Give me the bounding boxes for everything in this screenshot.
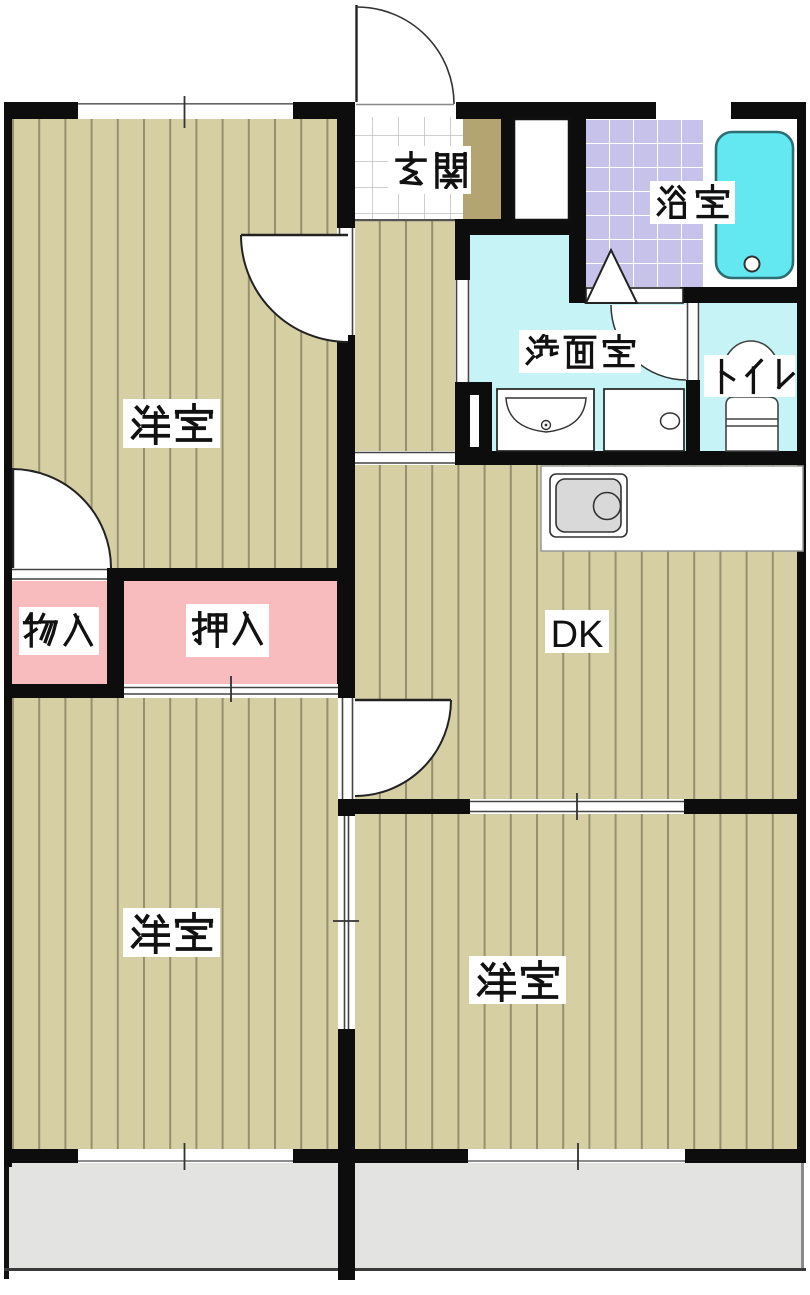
svg-text:DK: DK [551, 614, 604, 656]
